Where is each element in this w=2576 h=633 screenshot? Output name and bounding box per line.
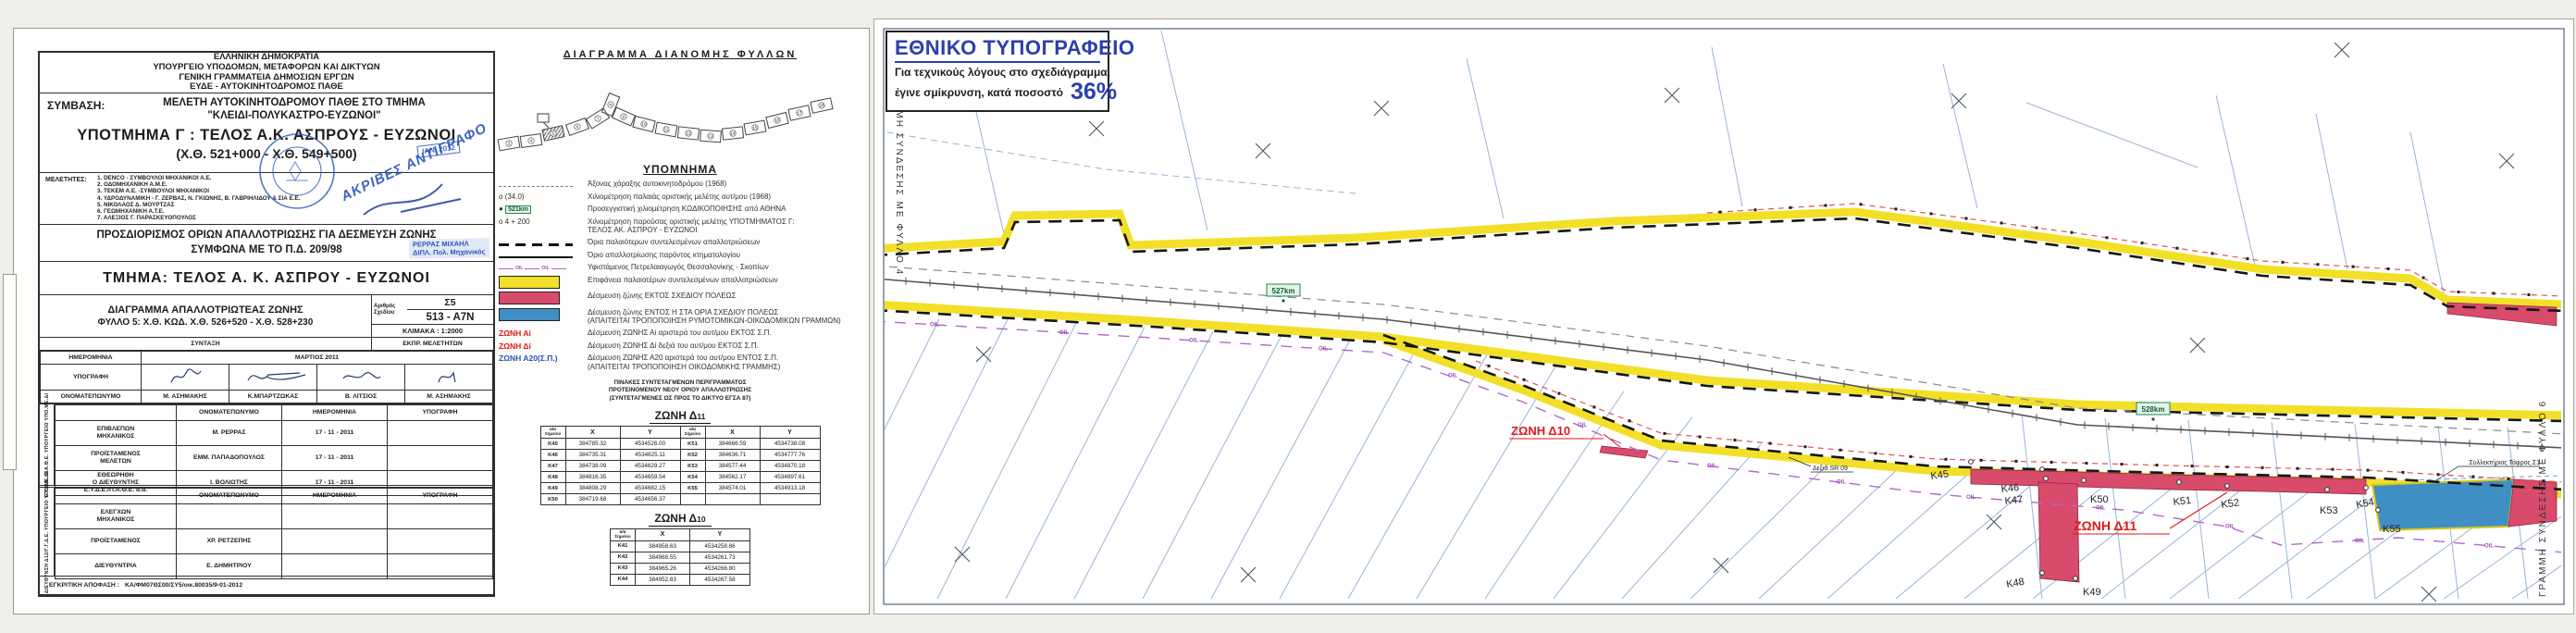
list-line: ΕΥΔΕ - ΑΥΤΟΚΙΝΗΤΟΔΡΟΜΟΣ ΠΑΘΕ (40, 82, 493, 93)
map-sheet: ΕΘΝΙΚΟ ΤΥΠΟΓΡΑΦΕΙΟ Για τεχνικούς λόγους … (873, 19, 2574, 614)
point-label: Κ50 (2090, 494, 2109, 505)
consultants-label: ΜΕΛΕΤΗΤΕΣ: (45, 177, 87, 183)
cell: ΠΡΟΪΣΤΑΜΕΝΟΣ ΜΕΛΕΤΩΝ (56, 446, 177, 471)
zone-d10-red-sliver (1600, 446, 1648, 458)
cell: 384952.83 (636, 574, 690, 585)
km-box-icon: 521km (505, 205, 531, 214)
cell (282, 529, 388, 554)
cell: 384719.68 (565, 494, 620, 505)
signature-cell (229, 365, 317, 390)
reduction-percentage: 36% (1071, 79, 1117, 105)
purpose-section: ΠΡΟΣΔΙΟΡΙΣΜΟΣ ΟΡΙΩΝ ΑΠΑΛΛΟΤΡΙΩΣΗΣ ΓΙΑ ΔΕ… (40, 225, 493, 262)
cell (388, 421, 493, 446)
cell: 17 - 11 - 2011 (282, 446, 388, 471)
cell (705, 494, 760, 505)
table-row: Κ41384958.634534258.86 (611, 540, 750, 552)
col-y: Y (620, 427, 680, 439)
cell (282, 504, 388, 529)
sheet-index-box: 3 (498, 136, 520, 151)
legend-item-pipeline: OILOIL Υφιστάμενος Πετρελαιαγωγός Θεσσαλ… (499, 263, 861, 272)
appr-header-empty (56, 405, 177, 421)
sheet-index-box: 11 (655, 122, 677, 137)
syntaxi-name: Μ. ΑΣΗΜΑΚΗΣ (142, 390, 229, 403)
cell: Κ41 (611, 540, 636, 552)
legend-item-zone-a20: ΖΩΝΗ Α20(Σ.Π.) Δέσμευση ΖΩΝΗΣ Α20 αριστε… (499, 354, 861, 371)
current-sheet-flag (538, 114, 549, 128)
point-label: Κ48 (2005, 577, 2025, 590)
list-line: 4. ΥΔΡΟΔΥΝΑΜΙΚΗ - Γ. ΖΕΡΒΑΣ, Ν. ΓΚΙΩΝΗΣ,… (97, 195, 489, 202)
legend-item-old-limits: Όρια παλαιότερων συντελεσμένων απαλλοτρι… (499, 238, 861, 247)
railway-ticks (882, 276, 2542, 451)
point-label: Κ46 (2000, 482, 2020, 495)
signatures-section: ΗΜΕΡΟΜΗΝΙΑ ΜΑΡΤΙΟΣ 2011 ΥΠΟΓΡΑΦΗ ΟΝΟΜΑΤΕ… (40, 351, 493, 404)
cell: 384958.63 (636, 540, 690, 552)
yellow-band (874, 212, 2564, 494)
signature-cell (142, 365, 229, 390)
cell: 384968.55 (636, 552, 690, 563)
engineer-stamp-title: ΔΙΠΛ. Πολ. Μηχανικός (413, 248, 486, 258)
legend-item-blue: Δέσμευση ζώνης ΕΝΤΟΣ Η ΣΤΑ ΟΡΙΑ ΣΧΕΔΙΟΥ … (499, 308, 861, 326)
bold-dashed-line-icon (499, 243, 573, 246)
table-row: Κ43384965.264534266.80 (611, 563, 750, 574)
cell: Κ52 (680, 450, 705, 461)
cell: 4534913.18 (760, 483, 820, 494)
sheet-index-box: 6 (566, 118, 589, 136)
agency-header: ΕΛΛΗΝΙΚΗ ΔΗΜΟΚΡΑΤΙΑΥΠΟΥΡΓΕΙΟ ΥΠΟΔΟΜΩΝ, Μ… (40, 53, 493, 93)
table-row: ΕΠΙΒΛΕΠΩΝ ΜΗΧΑΝΙΚΟΣΜ. ΡΕΡΡΑΣ17 - 11 - 20… (56, 421, 493, 446)
legend-title: ΥΠΟΜΝΗΜΑ (495, 163, 865, 176)
cell (760, 494, 820, 505)
grid-cross-icon (1714, 558, 1728, 573)
signature-cell (405, 365, 493, 390)
cell (177, 504, 282, 529)
name-row-label: ΟΝΟΜΑΤΕΠΩΝΥΜΟ (41, 390, 142, 403)
solid-line-icon (499, 256, 573, 258)
cell: ΕΜΜ. ΠΑΠΑΔΟΠΟΥΛΟΣ (177, 446, 282, 471)
expropriation-map: OILOILOILOILOILOILOILOILOILOILOILOILOIL … (874, 19, 2573, 614)
svg-text:OIL: OIL (1448, 374, 1457, 379)
table-row: Κ49384808.294534682.15Κ55384574.01453491… (540, 483, 820, 494)
grid-cross-icon (1374, 101, 1389, 116)
cell: 4534261.73 (690, 552, 750, 563)
grid-cross-icon (1256, 143, 1270, 158)
svg-text:OIL: OIL (2484, 543, 2494, 549)
cell: 384735.31 (565, 450, 620, 461)
printing-office-title: ΕΘΝΙΚΟ ΤΥΠΟΓΡΑΦΕΙΟ (895, 36, 1100, 63)
drawing-sheet: ΕΛΛΗΝΙΚΗ ΔΗΜΟΚΡΑΤΙΑΥΠΟΥΡΓΕΙΟ ΥΠΟΔΟΜΩΝ, Μ… (0, 0, 2576, 633)
cell: Κ55 (680, 483, 705, 494)
table-row: Κ47384738.094534629.27Κ53384577.44453487… (540, 461, 820, 472)
list-line: "ΚΛΕΙΔΙ-ΠΟΛΥΚΑΣΤΡΟ-ΕΥΖΩΝΟΙ" (101, 109, 488, 122)
cell: ΕΠΙΒΛΕΠΩΝ ΜΗΧΑΝΙΚΟΣ (56, 421, 177, 446)
appr-header-sign: ΥΠΟΓΡΑΦΗ (388, 405, 493, 421)
sheet-index-box: 14 (722, 127, 743, 140)
signature-cell (317, 365, 405, 390)
syntaxi-name: Β. ΛΙΤΣΙΟΣ (317, 390, 405, 403)
cell: 4534629.27 (620, 461, 680, 472)
svg-text:OIL: OIL (1189, 339, 1198, 344)
ditch-label: Συλλεκτήριος Τάφρος Σ1 (2469, 459, 2540, 466)
zone-polygons (1600, 303, 2557, 582)
list-line: ΕΛΛΗΝΙΚΗ ΔΗΜΟΚΡΑΤΙΑ (40, 53, 493, 63)
section-title: ΤΜΗΜΑ: ΤΕΛΟΣ Α. Κ. ΑΣΠΡΟΥ - ΕΥΖΩΝΟΙ (40, 262, 493, 295)
grid-cross-icon (1089, 121, 1104, 136)
railway-line (874, 279, 2564, 448)
printing-note-line1: Για τεχνικούς λόγους στο σχεδιάγραμμα, (895, 66, 1100, 79)
table-row: ΠΡΟΪΣΤΑΜΕΝΟΣ ΜΕΛΕΤΩΝΕΜΜ. ΠΑΠΑΔΟΠΟΥΛΟΣ17 … (56, 446, 493, 471)
cell: Κ43 (611, 563, 636, 574)
legend-item-zone-di: ΖΩΝΗ Δi Δέσμευση ΖΩΝΗΣ Δi δεξιά του αυτ/… (499, 341, 861, 351)
ekpr-label: ΕΚΠΡ. ΜΕΛΕΤΗΤΩΝ (371, 338, 493, 350)
eyde-approval-block: Ε.Υ.Δ.Ε./Π.Α.Θ.Ε. ΥΠΟΥΡΓΕΙΟ ΥΠΟ.ΜΕ.ΔΙ ΟΝ… (40, 404, 493, 488)
svg-text:OIL: OIL (930, 323, 939, 329)
cell: Ε. ΔΗΜΗΤΡΙΟΥ (177, 554, 282, 579)
cell: 4534258.86 (690, 540, 750, 552)
sheet-index-box: 7 (586, 108, 609, 129)
svg-text:OIL: OIL (1707, 464, 1716, 469)
contract-section: ΣΥΜΒΑΣΗ: ΜΕΛΕΤΗ ΑΥΤΟΚΙΝΗΤΟΔΡΟΜΟΥ ΠΑΘΕ ΣΤ… (40, 93, 493, 173)
cell: 4534870.18 (760, 461, 820, 472)
cell: 4534267.58 (690, 574, 750, 585)
cell (680, 494, 705, 505)
sheet-index-box: 8 (601, 93, 619, 117)
cell: Κ46 (540, 450, 565, 461)
sheet-index-box: 4 (520, 134, 541, 148)
list-line: ΦΥΛΛΟ 5: Χ.Θ. ΚΩΔ. Χ.Θ. 526+520 - Χ.Θ. 5… (40, 317, 371, 328)
cell: 4534526.00 (620, 439, 680, 450)
sheet-index-box: 15 (744, 120, 766, 135)
national-printing-note: ΕΘΝΙΚΟ ΤΥΠΟΓΡΑΦΕΙΟ Για τεχνικούς λόγους … (885, 31, 1109, 112)
list-line: 5. ΝΙΚΟΛΑΟΣ Δ. ΜΟΥΡΤΖΑΣ (97, 202, 489, 208)
approval-decision-value: ΚΑ/ΦΜ07ΘΣ00/ΣΥ5/οικ.80035/9-01-2012 (125, 582, 242, 589)
cell: 384562.17 (705, 472, 760, 483)
sr-label: Δεξιά SR 09 (1813, 465, 1848, 472)
cell: ΕΛΕΓΧΩΝ ΜΗΧΑΝΙΚΟΣ (56, 504, 177, 529)
km-528-box: 528km (2142, 405, 2165, 414)
appr-header-empty (56, 489, 177, 504)
approval-decision-label: ΕΓΚΡΙΤΙΚΗ ΑΠΟΦΑΣΗ : (49, 582, 119, 589)
cell: Κ44 (611, 574, 636, 585)
grid-cross-icon (1241, 567, 1256, 582)
legend-item-km-old: o (34.0) Χιλιομέτρηση παλαιάς οριστικής … (499, 192, 861, 202)
cell: 384965.26 (636, 563, 690, 574)
zone-d11-label: ΖΩΝΗ Δ11 (2074, 518, 2136, 533)
chainage-range: (Χ.Θ. 521+000 - Χ.Θ. 549+500) (45, 146, 488, 161)
zone-a20-blue-polygon (2372, 479, 2514, 530)
zone-d10-table: α/α Σημείου X Y Κ41384958.634534258.86Κ4… (610, 528, 750, 586)
km-527-box: 527km (1272, 287, 1295, 295)
sheet-index-box: 13 (700, 130, 722, 143)
sheet-index-diagram: 3456789101112131415161718 (495, 60, 865, 155)
sheet-index-box: 9 (613, 107, 636, 126)
d12-approval-block: ΔΙΕΥΘΥΝΣΗ Δ12/Γ.Γ.Δ.Ε. ΥΠΟΥΡΓΕΙΟ ΥΠΟ.ΜΕ.… (40, 488, 493, 577)
cell: 4534682.15 (620, 483, 680, 494)
cell: Κ50 (540, 494, 565, 505)
legend-item-yellow: Επιφάνεια παλαιοτέρων συντελεσμένων απαλ… (499, 276, 861, 289)
cell: Κ48 (540, 472, 565, 483)
legend-item-limit: Όριο απαλλοτρίωσης παρόντος κτηματολογίο… (499, 251, 861, 260)
cell: Κ45 (540, 439, 565, 450)
cell: Κ51 (680, 439, 705, 450)
cell: 384636.71 (705, 450, 760, 461)
drawing-number-box: Αριθμός Σχεδίου Σ5 513 - Α7Ν ΚΛΙΜΑΚΑ : 1… (371, 295, 493, 337)
consultants-list: 1. DENCO - ΣΥΜΒΟΥΛΟΙ ΜΗΧΑΝΙΚΟΙ Α.Ε.2. ΟΔ… (97, 175, 489, 221)
cell: Κ47 (540, 461, 565, 472)
syntaxi-label: ΣΥΝΤΑΞΗ (40, 338, 371, 350)
svg-text:OIL: OIL (1059, 330, 1069, 336)
cell: 4534897.61 (760, 472, 820, 483)
table-row: Κ44384952.834534267.58 (611, 574, 750, 585)
cell: 4534738.08 (760, 439, 820, 450)
list-line: 6. ΓΕΩΜΗΧΑΝΙΚΗ Α.Τ.Ε. (97, 208, 489, 215)
cell: 17 - 11 - 2011 (282, 421, 388, 446)
grid-cross-icon (2499, 154, 2514, 168)
d12-side-label: ΔΙΕΥΘΥΝΣΗ Δ12/Γ.Γ.Δ.Ε. ΥΠΟΥΡΓΕΙΟ ΥΠΟ.ΜΕ.… (44, 470, 50, 593)
appr-header-name: ΟΝΟΜΑΤΕΠΩΝΥΜΟ (177, 489, 282, 504)
syntaxi-strip: ΣΥΝΤΑΞΗ ΕΚΠΡ. ΜΕΛΕΤΗΤΩΝ (40, 338, 493, 351)
cell: 384808.29 (565, 483, 620, 494)
sheet-index-title: ΔΙΑΓΡΑΜΜΑ ΔΙΑΝΟΜΗΣ ΦΥΛΛΩΝ (495, 49, 865, 60)
svg-text:OIL: OIL (2355, 539, 2364, 544)
list-line: ΔΙΑΓΡΑΜΜΑ ΑΠΑΛΛΟΤΡΙΩΤΕΑΣ ΖΩΝΗΣ (40, 304, 371, 316)
drawing-number-label: Αριθμός Σχεδίου (372, 295, 407, 324)
col-point: α/α Σημείου (680, 427, 705, 439)
point-label: Κ55 (2383, 524, 2401, 535)
zone-d10-table-title: ΖΩΝΗ Δ10 (495, 512, 865, 525)
table-row: Κ48384816.354534659.54Κ54384562.17453489… (540, 472, 820, 483)
consultants-section: ΜΕΛΕΤΗΤΕΣ: 1. DENCO - ΣΥΜΒΟΥΛΟΙ ΜΗΧΑΝΙΚΟ… (40, 173, 493, 225)
grid-cross-icon (2190, 338, 2205, 353)
cell: ΔΙΕΥΘΥΝΤΡΙΑ (56, 554, 177, 579)
cell: 384816.35 (565, 472, 620, 483)
table-row: ΕΛΕΓΧΩΝ ΜΗΧΑΝΙΚΟΣ (56, 504, 493, 529)
legend: Άξονας χάραξης αυτοκινητοδρόμου (1968) o… (499, 180, 861, 372)
drawing-title-section: ΔΙΑΓΡΑΜΜΑ ΑΠΑΛΛΟΤΡΙΩΤΕΑΣ ΖΩΝΗΣΦΥΛΛΟ 5: Χ… (40, 295, 493, 338)
date-row-label: ΗΜΕΡΟΜΗΝΙΑ (41, 352, 142, 365)
zone-d10-label: ΖΩΝΗ Δ10 (1511, 424, 1570, 438)
cell: 4534777.76 (760, 450, 820, 461)
red-swatch-icon (499, 292, 560, 304)
svg-text:OIL: OIL (1578, 423, 1587, 428)
point-label: Κ47 (2004, 494, 2024, 507)
sheet-index-box: 16 (766, 113, 788, 129)
sheet-index-box: 5 (542, 126, 564, 141)
drawing-number-bottom: 513 - Α7Ν (407, 310, 493, 324)
cell: Κ49 (540, 483, 565, 494)
col-x: X (636, 529, 690, 541)
legend-item-zone-ai: ΖΩΝΗ Αi Δέσμευση ΖΩΝΗΣ Αi αριστερά του α… (499, 329, 861, 338)
list-line: ΠΙΝΑΚΕΣ ΣΥΝΤΕΤΑΓΜΕΝΩΝ ΠΕΡΙΓΡΑΜΜΑΤΟΣ (495, 379, 865, 388)
left-sheet: ΕΛΛΗΝΙΚΗ ΔΗΜΟΚΡΑΤΙΑΥΠΟΥΡΓΕΙΟ ΥΠΟΔΟΜΩΝ, Μ… (13, 28, 870, 614)
table-row: Κ50384719.684534656.37 (540, 494, 820, 505)
cell: Κ42 (611, 552, 636, 563)
list-line: (ΣΥΝΤΕΤΑΓΜΕΝΕΣ ΩΣ ΠΡΟΣ ΤΟ ΔΙΚΤΥΟ ΕΓΣΑ 87… (495, 395, 865, 403)
grid-cross-icon (1951, 93, 1966, 108)
grid-cross-icon (2334, 43, 2349, 57)
cell (388, 529, 493, 554)
contract-label: ΣΥΜΒΑΣΗ: (47, 99, 105, 112)
cell: ΧΡ. ΡΕΤΖΕΠΗΣ (177, 529, 282, 554)
middle-panel: ΔΙΑΓΡΑΜΜΑ ΔΙΑΝΟΜΗΣ ΦΥΛΛΩΝ 34567891011121… (495, 43, 865, 604)
contract-lines: ΜΕΛΕΤΗ ΑΥΤΟΚΙΝΗΤΟΔΡΟΜΟΥ ΠΑΘΕ ΣΤΟ ΤΜΗΜΑ"Κ… (101, 96, 488, 123)
appr-header-date: ΗΜΕΡΟΜΗΝΙΑ (282, 405, 388, 421)
syntaxi-name: Κ.ΜΠΑΡΤΖΩΚΑΣ (229, 390, 317, 403)
col-x: X (705, 427, 760, 439)
engineer-stamp: ΡΕΡΡΑΣ ΜΙΧΑΗΛ ΔΙΠΛ. Πολ. Μηχανικός (409, 238, 489, 258)
table-row: Κ46384735.314534625.11Κ52384636.71453477… (540, 450, 820, 461)
list-line: ΥΠΟΥΡΓΕΙΟ ΥΠΟΔΟΜΩΝ, ΜΕΤΑΦΟΡΩΝ ΚΑΙ ΔΙΚΤΥΩ… (40, 63, 493, 73)
list-line: 3. ΤΕΚΕΜ Α.Ε. -ΣΥΜΒΟΥΛΟΙ ΜΗΧΑΝΙΚΟΙ (97, 188, 489, 194)
col-y: Y (760, 427, 820, 439)
list-line: 1. DENCO - ΣΥΜΒΟΥΛΟΙ ΜΗΧΑΝΙΚΟΙ Α.Ε. (97, 175, 489, 181)
svg-text:OIL: OIL (2096, 505, 2105, 511)
oil-pipeline-icon: OILOIL (499, 266, 566, 271)
cell: Κ54 (680, 472, 705, 483)
col-point: α/α Σημείου (611, 529, 636, 541)
axis-dashed-icon (499, 186, 573, 187)
point-label: Κ54 (2355, 497, 2374, 511)
legend-item-km-new: o 4 + 200 Χιλιομέτρηση παρούσας οριστική… (499, 217, 861, 235)
cell: 4534266.80 (690, 563, 750, 574)
date-row-value: ΜΑΡΤΙΟΣ 2011 (142, 352, 493, 365)
cell (388, 446, 493, 471)
list-line: 2. ΟΔΟΜΗΧΑΝΙΚΗ Α.Μ.Ε. (97, 181, 489, 188)
table-row: Κ45384785.324534526.00Κ51384666.59453473… (540, 439, 820, 450)
cell: Μ. ΡΕΡΡΑΣ (177, 421, 282, 446)
zone-d11-table: α/α Σημείου X Y α/α Σημείου X Y Κ4538478… (540, 426, 821, 505)
drawing-number-top: Σ5 (407, 295, 493, 310)
point-label: Κ49 (2083, 587, 2101, 598)
sign-row-label: ΥΠΟΓΡΑΦΗ (41, 365, 142, 390)
cell: 4534625.11 (620, 450, 680, 461)
sheet-index-box: 12 (677, 127, 699, 140)
blue-swatch-icon (499, 308, 560, 321)
appr-header-date: ΗΜΕΡΟΜΗΝΙΑ (282, 489, 388, 504)
cell: 384738.09 (565, 461, 620, 472)
cell: 384577.44 (705, 461, 760, 472)
yellow-swatch-icon (499, 276, 560, 289)
sheet-index-box: 18 (811, 98, 833, 113)
point-label: Κ53 (2320, 505, 2338, 516)
cell (388, 504, 493, 529)
list-line: ΠΡΟΤΕΙΝΟΜΕΝΟΥ ΝΕΟΥ ΟΡΙΟΥ ΑΠΑΛΛΟΤΡΙΩΣΗΣ (495, 387, 865, 395)
oil-pipeline-labels: OILOILOILOILOILOILOILOILOILOILOILOILOIL (930, 323, 2494, 550)
margin-strip (3, 274, 17, 470)
printing-note-line2: έγινε σμίκρυνση, κατά ποσοστό 36% (895, 79, 1100, 105)
cell (388, 554, 493, 579)
cell: Κ53 (680, 461, 705, 472)
cell (282, 554, 388, 579)
drawing-title-lines: ΔΙΑΓΡΑΜΜΑ ΑΠΑΛΛΟΤΡΙΩΤΕΑΣ ΖΩΝΗΣΦΥΛΛΟ 5: Χ… (40, 295, 371, 337)
title-block: ΕΛΛΗΝΙΚΗ ΔΗΜΟΚΡΑΤΙΑΥΠΟΥΡΓΕΙΟ ΥΠΟΔΟΜΩΝ, Μ… (38, 51, 495, 597)
svg-text:OIL: OIL (1319, 347, 1328, 353)
svg-text:13: 13 (708, 133, 713, 138)
cell: 4534659.54 (620, 472, 680, 483)
table-row: ΠΡΟΪΣΤΑΜΕΝΟΣΧΡ. ΡΕΤΖΕΠΗΣ (56, 529, 493, 554)
appr-header-sign: ΥΠΟΓΡΑΦΗ (388, 489, 493, 504)
cell: 384785.32 (565, 439, 620, 450)
zone-d11-table-title: ΖΩΝΗ Δ11 (495, 409, 865, 422)
cell: 384666.59 (705, 439, 760, 450)
cell: ΠΡΟΪΣΤΑΜΕΝΟΣ (56, 529, 177, 554)
col-x: X (565, 427, 620, 439)
svg-text:OIL: OIL (2225, 525, 2235, 530)
cell: 384574.01 (705, 483, 760, 494)
col-y: Y (690, 529, 750, 541)
edge-label-sheet6: ΓΡΑΜΜΗ ΣΥΝΔΕΣΗΣ ΜΕ ΦΥΛΛΟ 6 (2538, 400, 2548, 597)
approval-decision: ΕΓΚΡΙΤΙΚΗ ΑΠΟΦΑΣΗ : ΚΑ/ΦΜ07ΘΣ00/ΣΥ5/οικ.… (40, 577, 493, 595)
list-line: ΜΕΛΕΤΗ ΑΥΤΟΚΙΝΗΤΟΔΡΟΜΟΥ ΠΑΘΕ ΣΤΟ ΤΜΗΜΑ (101, 96, 488, 109)
grid-cross-icon (976, 347, 991, 362)
svg-text:OIL: OIL (1966, 495, 1975, 501)
cell: 4534656.37 (620, 494, 680, 505)
grid-cross-icon (2421, 587, 2436, 602)
svg-text:OIL: OIL (1837, 480, 1846, 486)
point-label: Κ51 (2173, 495, 2192, 508)
table-row: Κ42384968.554534261.73 (611, 552, 750, 563)
legend-item-km-code: ● 521km Προσεγγιστική χιλιομέτρηση ΚΩΔΙΚ… (499, 205, 861, 214)
list-line: 7. ΑΛΕΞΙΟΣ Γ. ΠΑΡΑΣΚΕΥΟΠΟΥΛΟΣ (97, 215, 489, 221)
scale-label: ΚΛΙΜΑΚΑ : 1:2000 (372, 324, 493, 337)
grid-cross-icon (1665, 88, 1679, 103)
legend-item-axis: Άξονας χάραξης αυτοκινητοδρόμου (1968) (499, 180, 861, 189)
point-label: Κ52 (2221, 497, 2240, 511)
subsection-title: ΥΠΟΤΜΗΜΑ Γ : ΤΕΛΟΣ Α.Κ. ΑΣΠΡΟΥΣ - ΕΥΖΩΝΟ… (45, 127, 488, 144)
legend-item-red: Δέσμευση ζώνης ΕΚΤΟΣ ΣΧΕΔΙΟΥ ΠΟΛΕΩΣ (499, 292, 861, 304)
oil-pipeline-line (874, 321, 2564, 552)
appr-header-name: ΟΝΟΜΑΤΕΠΩΝΥΜΟ (177, 405, 282, 421)
point-label: Κ45 (1930, 468, 1950, 482)
sheet-index-box: 10 (633, 117, 655, 132)
col-point: α/α Σημείου (540, 427, 565, 439)
coordinate-tables-note: ΠΙΝΑΚΕΣ ΣΥΝΤΕΤΑΓΜΕΝΩΝ ΠΕΡΙΓΡΑΜΜΑΤΟΣΠΡΟΤΕ… (495, 379, 865, 403)
sheet-index-box: 17 (788, 105, 811, 120)
table-row: ΔΙΕΥΘΥΝΤΡΙΑΕ. ΔΗΜΗΤΡΙΟΥ (56, 554, 493, 579)
syntaxi-name: Μ. ΑΣΗΜΑΚΗΣ (405, 390, 493, 403)
